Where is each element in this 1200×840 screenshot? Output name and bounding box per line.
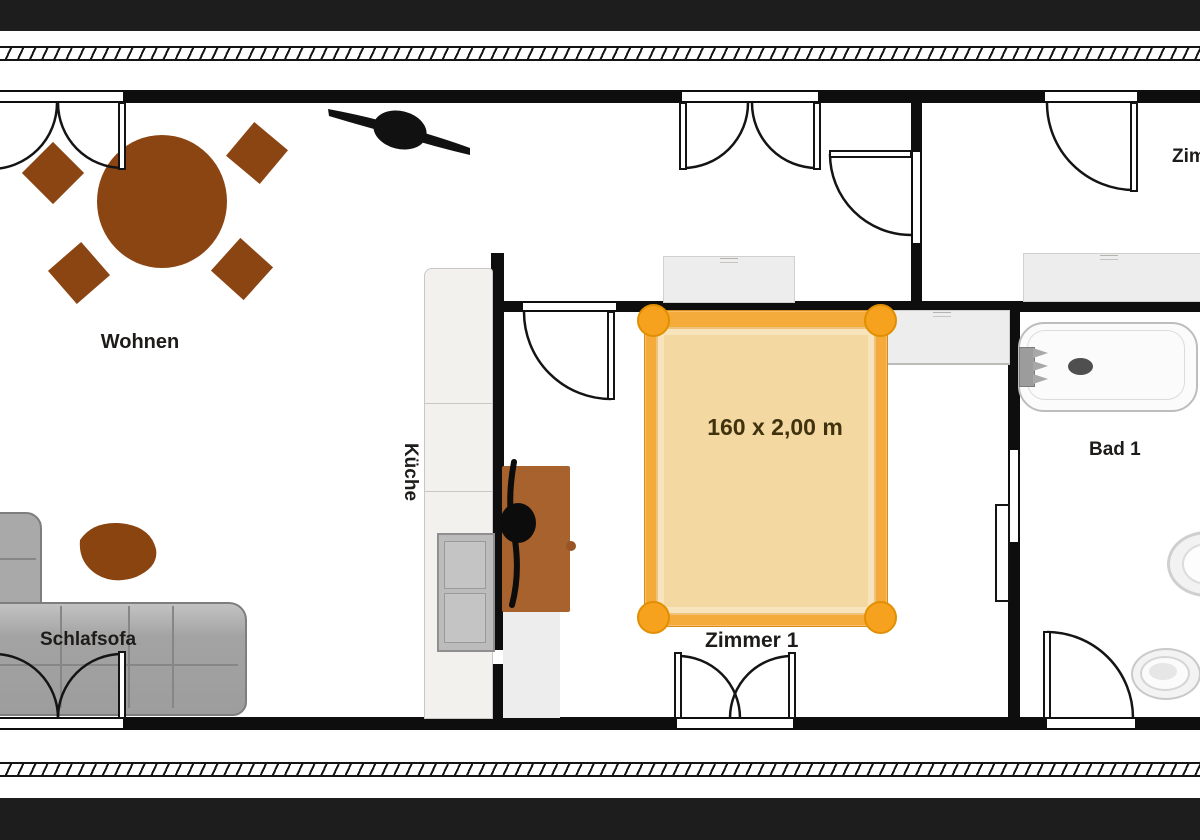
chair-bottom-left[interactable] (48, 242, 110, 304)
chair-bottom-right[interactable] (211, 238, 273, 300)
top-black-bar (0, 0, 1200, 31)
ceiling-fan-icon[interactable] (328, 105, 470, 155)
room-label-bad1: Bad 1 (1089, 439, 1141, 461)
chair-top-left[interactable] (22, 142, 84, 204)
wall-zimmer2-lower (911, 243, 922, 312)
kitchen-counter-top[interactable] (424, 268, 493, 405)
bed-corner-knob (637, 304, 670, 337)
appliance-door-top (444, 541, 486, 589)
room-label-zimmer2: Zimmer 2 (1172, 146, 1200, 168)
window-band-bottom (0, 762, 1200, 777)
sofa-seam (60, 606, 62, 708)
kitchen-side-slab (503, 612, 560, 718)
bathtub-inner (1027, 330, 1185, 400)
toilet-bowl (1149, 663, 1177, 680)
sofa-seam (0, 664, 238, 666)
door-corridor-zimmer1[interactable] (524, 312, 614, 399)
wardrobe-corridor[interactable] (663, 256, 795, 303)
door-opening-bottom-left (0, 717, 123, 730)
door-bad-bottom[interactable] (1044, 632, 1133, 718)
chair-top-right[interactable] (226, 122, 288, 184)
exterior-wall-top-2 (818, 90, 1045, 103)
kitchen-counter-mid[interactable] (424, 403, 493, 493)
door-opening-top-left (0, 90, 123, 103)
door-opening-zimmer2-corridor (911, 152, 922, 243)
exterior-wall-bottom-3 (1135, 717, 1200, 730)
room-label-zimmer1: Zimmer 1 (705, 629, 798, 653)
door-balcony[interactable] (680, 103, 820, 169)
wall-bad-lower (1008, 542, 1020, 730)
bed-mattress (656, 327, 876, 615)
sofa-seam (172, 606, 174, 708)
sofa-body[interactable] (0, 602, 247, 716)
exterior-wall-top-3 (1137, 90, 1200, 103)
window-band-top (0, 46, 1200, 61)
bathtub-drain (1068, 358, 1093, 375)
door-corridor-zimmer2[interactable] (830, 151, 911, 235)
wall-corridor-stub (491, 301, 523, 312)
door-zimmer2-top[interactable] (1047, 103, 1137, 191)
exterior-wall-bottom-1 (123, 717, 677, 730)
toilet[interactable] (1131, 648, 1200, 700)
kitchen-appliance[interactable] (437, 533, 495, 652)
wall-zimmer2-upper (911, 101, 922, 152)
exterior-wall-top-1 (123, 90, 682, 103)
coffee-table[interactable] (80, 523, 157, 580)
bed-zimmer1[interactable] (644, 310, 888, 627)
sofa-seam (128, 606, 130, 708)
dresser-zimmer1[interactable] (880, 310, 1010, 365)
dining-table[interactable] (97, 135, 227, 268)
cabinet-handle (933, 312, 951, 317)
door-opening-corridor (523, 301, 616, 312)
bed-corner-knob (637, 601, 670, 634)
bathroom-sink[interactable] (1167, 531, 1200, 597)
bed-corner-knob (864, 601, 897, 634)
bed-size-label: 160 x 2,00 m (650, 414, 900, 441)
floor-plan-canvas: Wohnen Küche Schlafsofa 160 x 2,00 m Zim… (0, 0, 1200, 840)
door-opening-zimmer1 (677, 717, 793, 730)
door-opening-bad-interior (1008, 450, 1020, 542)
sink-basin (1182, 543, 1200, 585)
bathtub-faucet (1019, 347, 1035, 387)
bottom-black-bar (0, 798, 1200, 840)
bed-corner-knob (864, 304, 897, 337)
room-label-kueche: Küche (399, 437, 421, 507)
appliance-door-bottom (444, 593, 486, 643)
door-opening-zimmer2 (1045, 90, 1137, 103)
sofa-label: Schlafsofa (40, 629, 136, 651)
counter-zimmer2[interactable] (1023, 253, 1200, 302)
kitchen-table[interactable] (502, 466, 570, 612)
cabinet-handle (1100, 255, 1118, 260)
door-zimmer1-bottom[interactable] (675, 653, 795, 718)
door-opening-balcony (682, 90, 818, 103)
sofa-seam (0, 558, 36, 560)
room-label-wohnen: Wohnen (94, 331, 186, 354)
door-opening-bad (1047, 717, 1135, 730)
bathtub[interactable] (1018, 322, 1198, 412)
cabinet-handle (720, 258, 738, 263)
